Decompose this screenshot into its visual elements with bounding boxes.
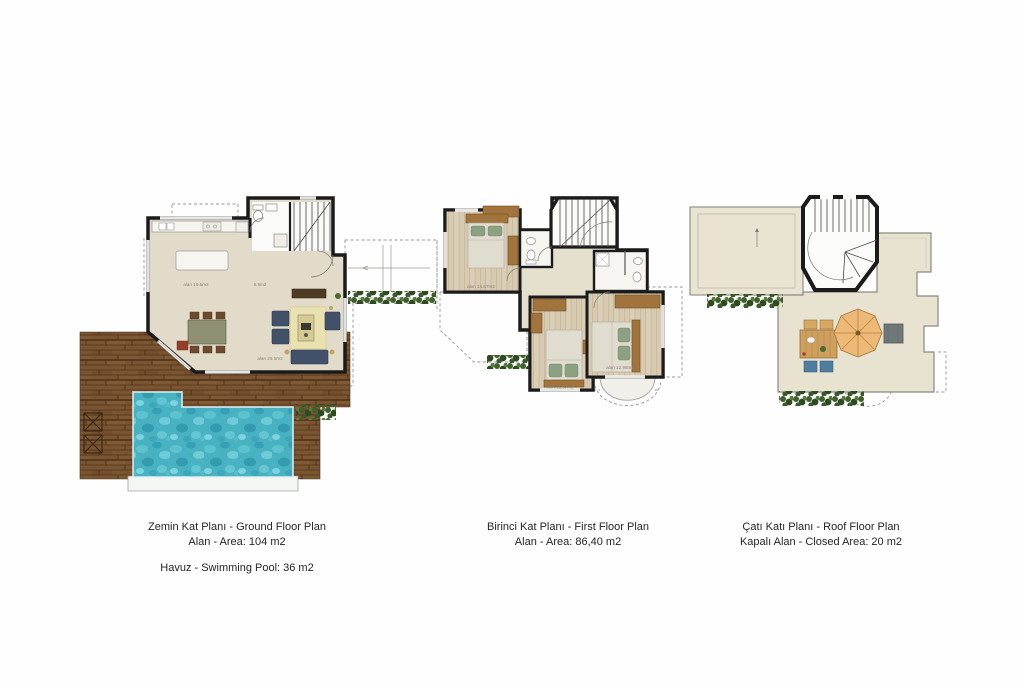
hedge <box>348 291 436 304</box>
staircase <box>551 198 617 247</box>
lower-roof <box>690 207 803 295</box>
side-table <box>285 350 290 355</box>
ground-floor-plan: alan 19.5m2 9.5m2 alan 29.5m2 <box>75 190 440 510</box>
bedroom-2 <box>530 297 593 390</box>
patio-chair <box>804 320 817 329</box>
pillow <box>471 226 485 236</box>
caption-roof-floor: Çatı Katı Planı - Roof Floor Plan Kapalı… <box>671 520 971 550</box>
first-floor-plan: alan 14.67m2 <box>435 190 700 422</box>
caption-line: Çatı Katı Planı - Roof Floor Plan <box>671 520 971 535</box>
room-area-label: alan 14.67m2 <box>467 284 495 289</box>
bathroom <box>520 230 552 267</box>
pool-edge <box>128 476 298 491</box>
patio-cushion <box>820 361 833 372</box>
kitchen-island <box>176 251 228 270</box>
caption-line: Havuz - Swimming Pool: 36 m2 <box>87 561 387 576</box>
pergola-posts <box>383 245 391 292</box>
caption-ground-floor: Zemin Kat Planı - Ground Floor Plan Alan… <box>87 520 387 550</box>
side-table <box>330 350 335 355</box>
room-area-label: alan 12.98m2 <box>606 365 634 370</box>
pillow <box>618 346 630 360</box>
floor-lamp <box>329 306 333 310</box>
wardrobe <box>508 236 518 265</box>
parasol-umbrella <box>834 309 882 357</box>
caption-line: Alan - Area: 104 m2 <box>87 535 387 550</box>
side-table <box>884 324 903 343</box>
bedroom-1: alan 14.67m2 <box>445 206 520 292</box>
terrace-dashed-outline <box>440 292 527 362</box>
plant <box>335 293 341 299</box>
patio-chair <box>820 320 833 329</box>
pillow <box>565 364 578 377</box>
sofa <box>291 350 328 364</box>
wardrobe <box>531 313 542 333</box>
bed-headboard <box>466 214 508 223</box>
pillow <box>549 364 562 377</box>
caption-line: Kapalı Alan - Closed Area: 20 m2 <box>671 535 971 550</box>
room-area-label: alan 19.5m2 <box>183 282 209 287</box>
armchair <box>325 312 340 330</box>
caption-pool-area: Havuz - Swimming Pool: 36 m2 <box>87 561 387 576</box>
armchair <box>272 311 289 326</box>
room-area-label: alan 29.5m2 <box>257 356 283 361</box>
dining-chair <box>177 341 188 350</box>
hedge <box>296 404 336 420</box>
kitchen-counter <box>152 221 250 232</box>
patio-cushion <box>804 361 817 372</box>
wardrobe <box>533 299 566 311</box>
plant <box>820 346 826 352</box>
armchair <box>272 329 289 344</box>
pillow <box>618 328 630 342</box>
roof-floor-plan <box>685 193 947 420</box>
hedge <box>487 355 529 369</box>
hedge <box>779 391 864 406</box>
floor-plan-sheet: alan 19.5m2 9.5m2 alan 29.5m2 alan 14.67… <box>0 0 1024 684</box>
bathroom <box>594 251 647 291</box>
hedge <box>707 294 783 308</box>
room-area-label: 9.5m2 <box>254 282 267 287</box>
caption-line: Zemin Kat Planı - Ground Floor Plan <box>87 520 387 535</box>
sideboard <box>292 289 326 298</box>
balcony <box>600 377 655 400</box>
wardrobe <box>615 295 660 308</box>
overhang-dashed-outline <box>172 204 238 217</box>
staircase <box>252 202 331 251</box>
stair-enclosure <box>803 197 877 290</box>
pillow <box>488 226 502 236</box>
